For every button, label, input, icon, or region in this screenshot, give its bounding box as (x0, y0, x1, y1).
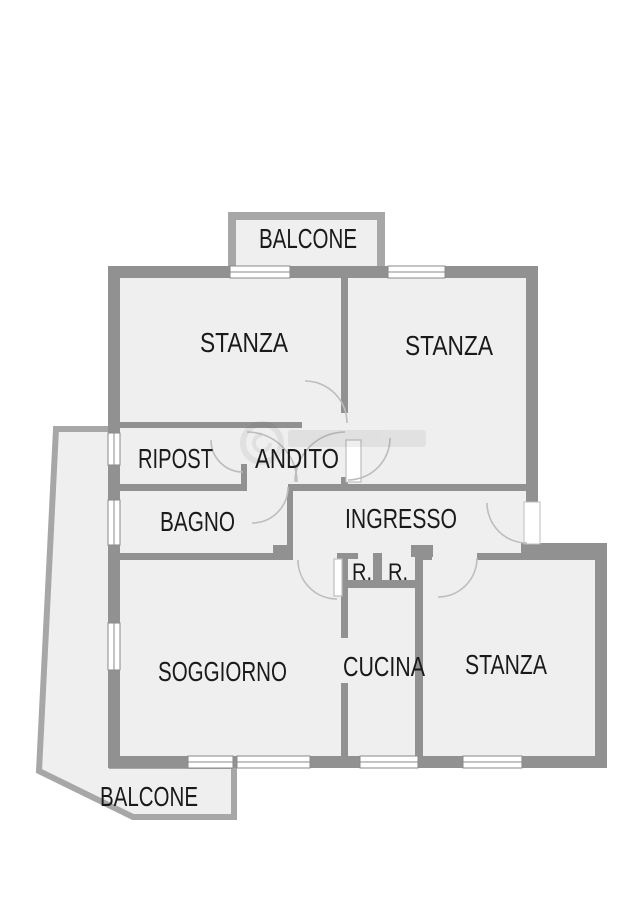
wall (114, 553, 293, 560)
floor-plan-drawing: BALCONE STANZA STANZA RIPOST ANDITO BAGN… (0, 0, 636, 900)
wall (423, 553, 432, 560)
wall (288, 484, 532, 491)
room-label-cucina: CUCINA (343, 651, 425, 682)
wall-pillar (521, 543, 538, 555)
balcony-top-wall (377, 212, 385, 268)
room-label-ripost: RIPOST (138, 443, 213, 474)
room-label-stanza-bottom-right: STANZA (465, 649, 547, 680)
room-label-closet-left: R. (352, 559, 372, 586)
balcony-top-wall (228, 212, 236, 268)
wall-pillar (273, 545, 293, 557)
room-label-balcone-top: BALCONE (259, 223, 357, 254)
wall (341, 683, 348, 762)
room-label-soggiorno: SOGGIORNO (158, 656, 287, 687)
room-label-stanza-top-left: STANZA (200, 327, 288, 358)
room-label-stanza-top-right: STANZA (405, 330, 493, 361)
room-label-andito: ANDITO (255, 443, 339, 474)
room-label-closet-right: R. (388, 559, 408, 586)
room-label-ingresso: INGRESSO (345, 503, 457, 534)
room-label-balcone-bottom: BALCONE (100, 781, 198, 812)
room-label-bagno: BAGNO (160, 506, 235, 537)
wall (341, 272, 348, 413)
door-leaf (334, 559, 342, 596)
balcony-top-wall (228, 212, 385, 220)
wall (114, 484, 247, 491)
floor-plan-page: BALCONE STANZA STANZA RIPOST ANDITO BAGN… (0, 0, 636, 900)
entrance-door-opening (524, 502, 540, 544)
wall (241, 464, 247, 487)
